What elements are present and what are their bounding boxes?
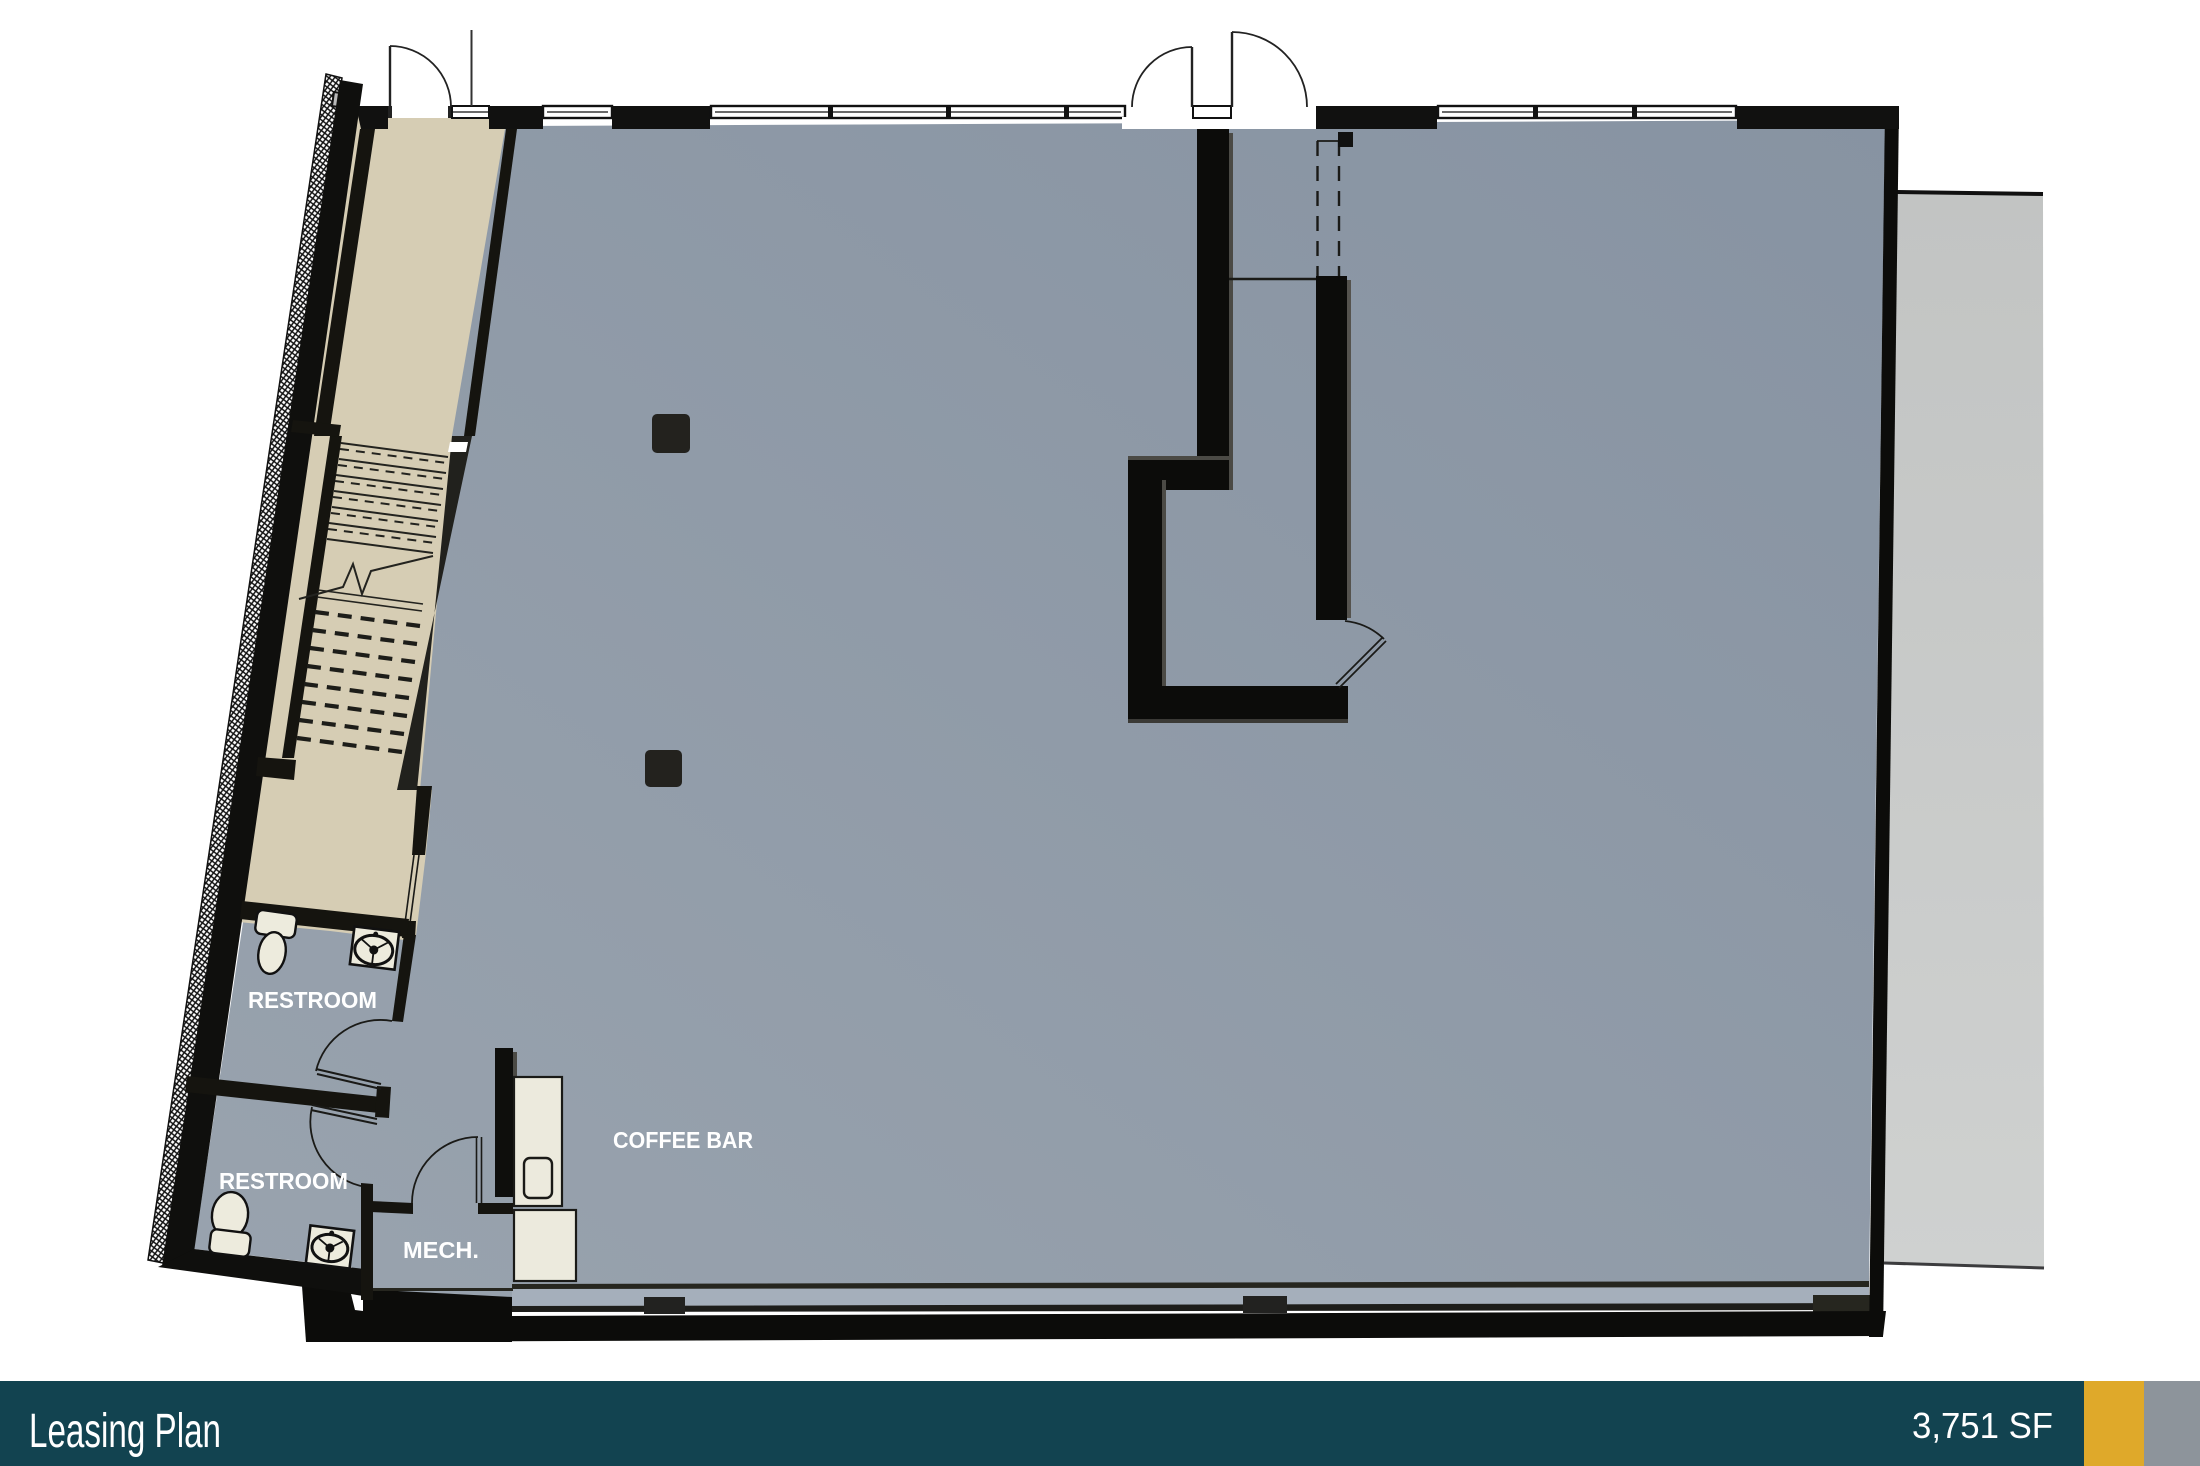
svg-text:Leasing Plan: Leasing Plan xyxy=(29,1405,221,1458)
svg-text:3,751 SF: 3,751 SF xyxy=(1912,1405,2053,1446)
svg-text:RESTROOM: RESTROOM xyxy=(219,1168,348,1194)
svg-text:COFFEE BAR: COFFEE BAR xyxy=(613,1127,753,1153)
svg-text:RESTROOM: RESTROOM xyxy=(248,987,377,1013)
svg-text:MECH.: MECH. xyxy=(403,1237,479,1263)
